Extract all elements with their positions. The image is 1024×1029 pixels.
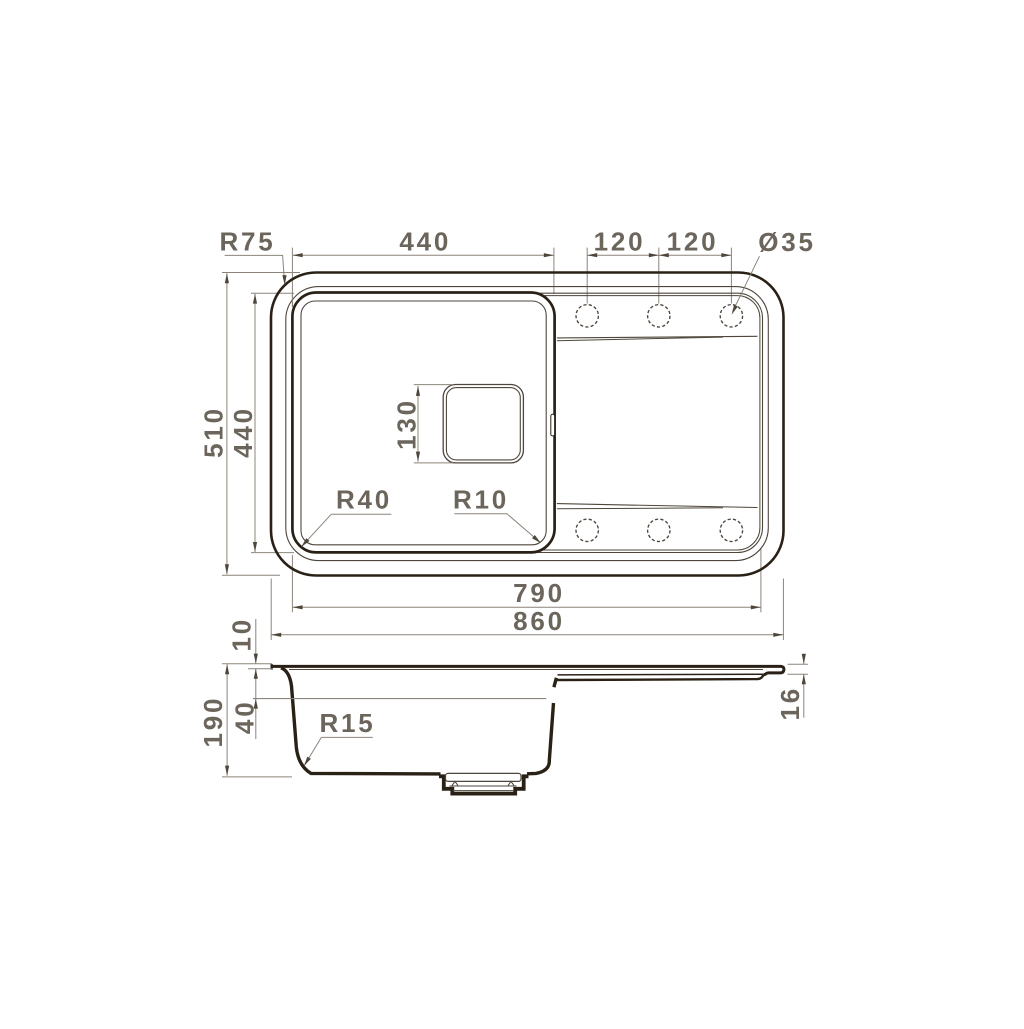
svg-text:Ø35: Ø35 (758, 227, 816, 257)
svg-text:860: 860 (513, 606, 565, 636)
svg-text:190: 190 (198, 696, 228, 748)
svg-text:R40: R40 (336, 485, 392, 515)
svg-text:10: 10 (227, 617, 257, 652)
svg-text:440: 440 (228, 406, 258, 458)
svg-text:40: 40 (229, 700, 259, 735)
svg-text:510: 510 (199, 406, 229, 458)
svg-text:R75: R75 (219, 226, 275, 256)
svg-text:790: 790 (513, 578, 565, 608)
svg-text:440: 440 (399, 226, 451, 256)
svg-text:16: 16 (775, 686, 805, 721)
svg-text:R15: R15 (319, 708, 375, 738)
svg-text:R10: R10 (453, 485, 509, 515)
svg-text:120: 120 (594, 226, 646, 256)
svg-text:120: 120 (667, 226, 719, 256)
svg-text:130: 130 (392, 398, 422, 450)
